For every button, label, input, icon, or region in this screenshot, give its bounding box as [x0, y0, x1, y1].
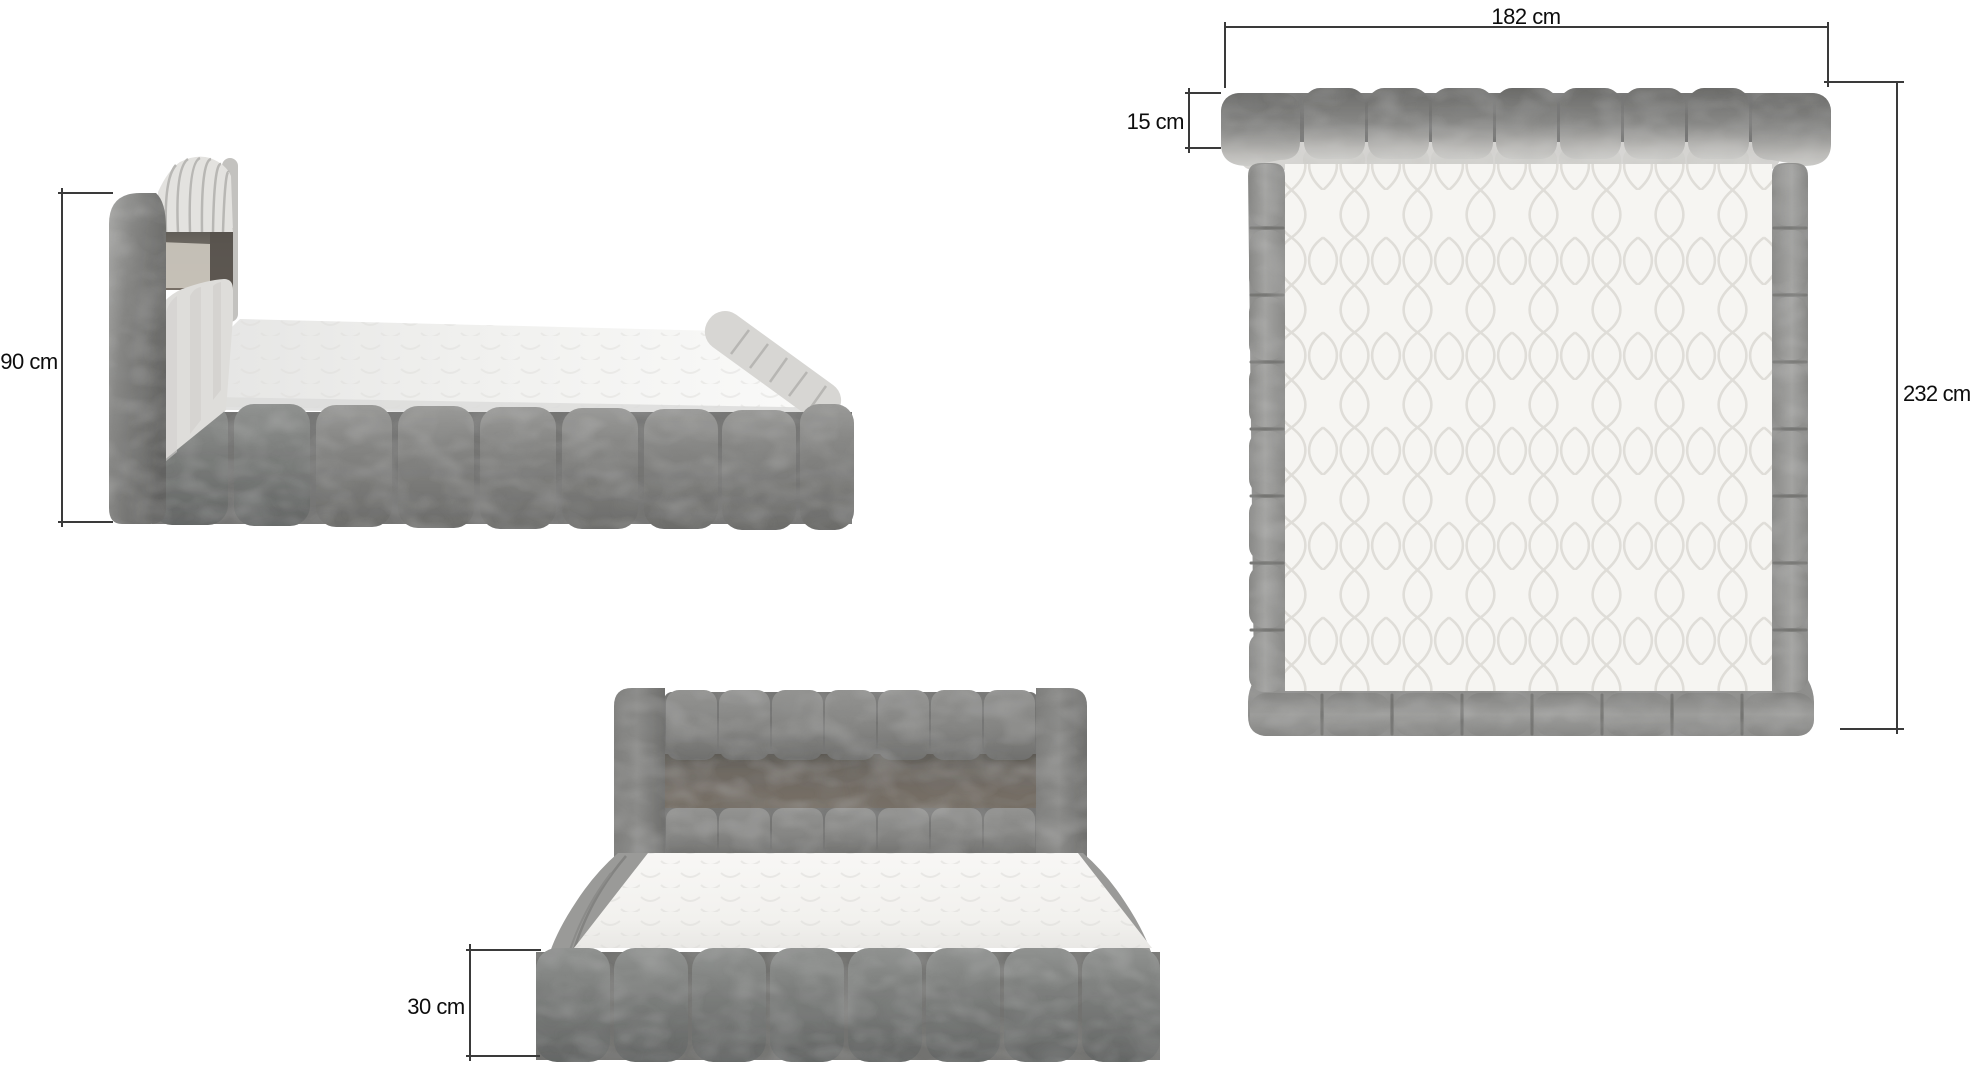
svg-text:232 cm: 232 cm — [1903, 381, 1970, 406]
svg-text:90 cm: 90 cm — [0, 349, 57, 374]
svg-text:182 cm: 182 cm — [1491, 4, 1560, 29]
svg-text:15 cm: 15 cm — [1127, 109, 1184, 134]
svg-text:30 cm: 30 cm — [407, 994, 464, 1019]
